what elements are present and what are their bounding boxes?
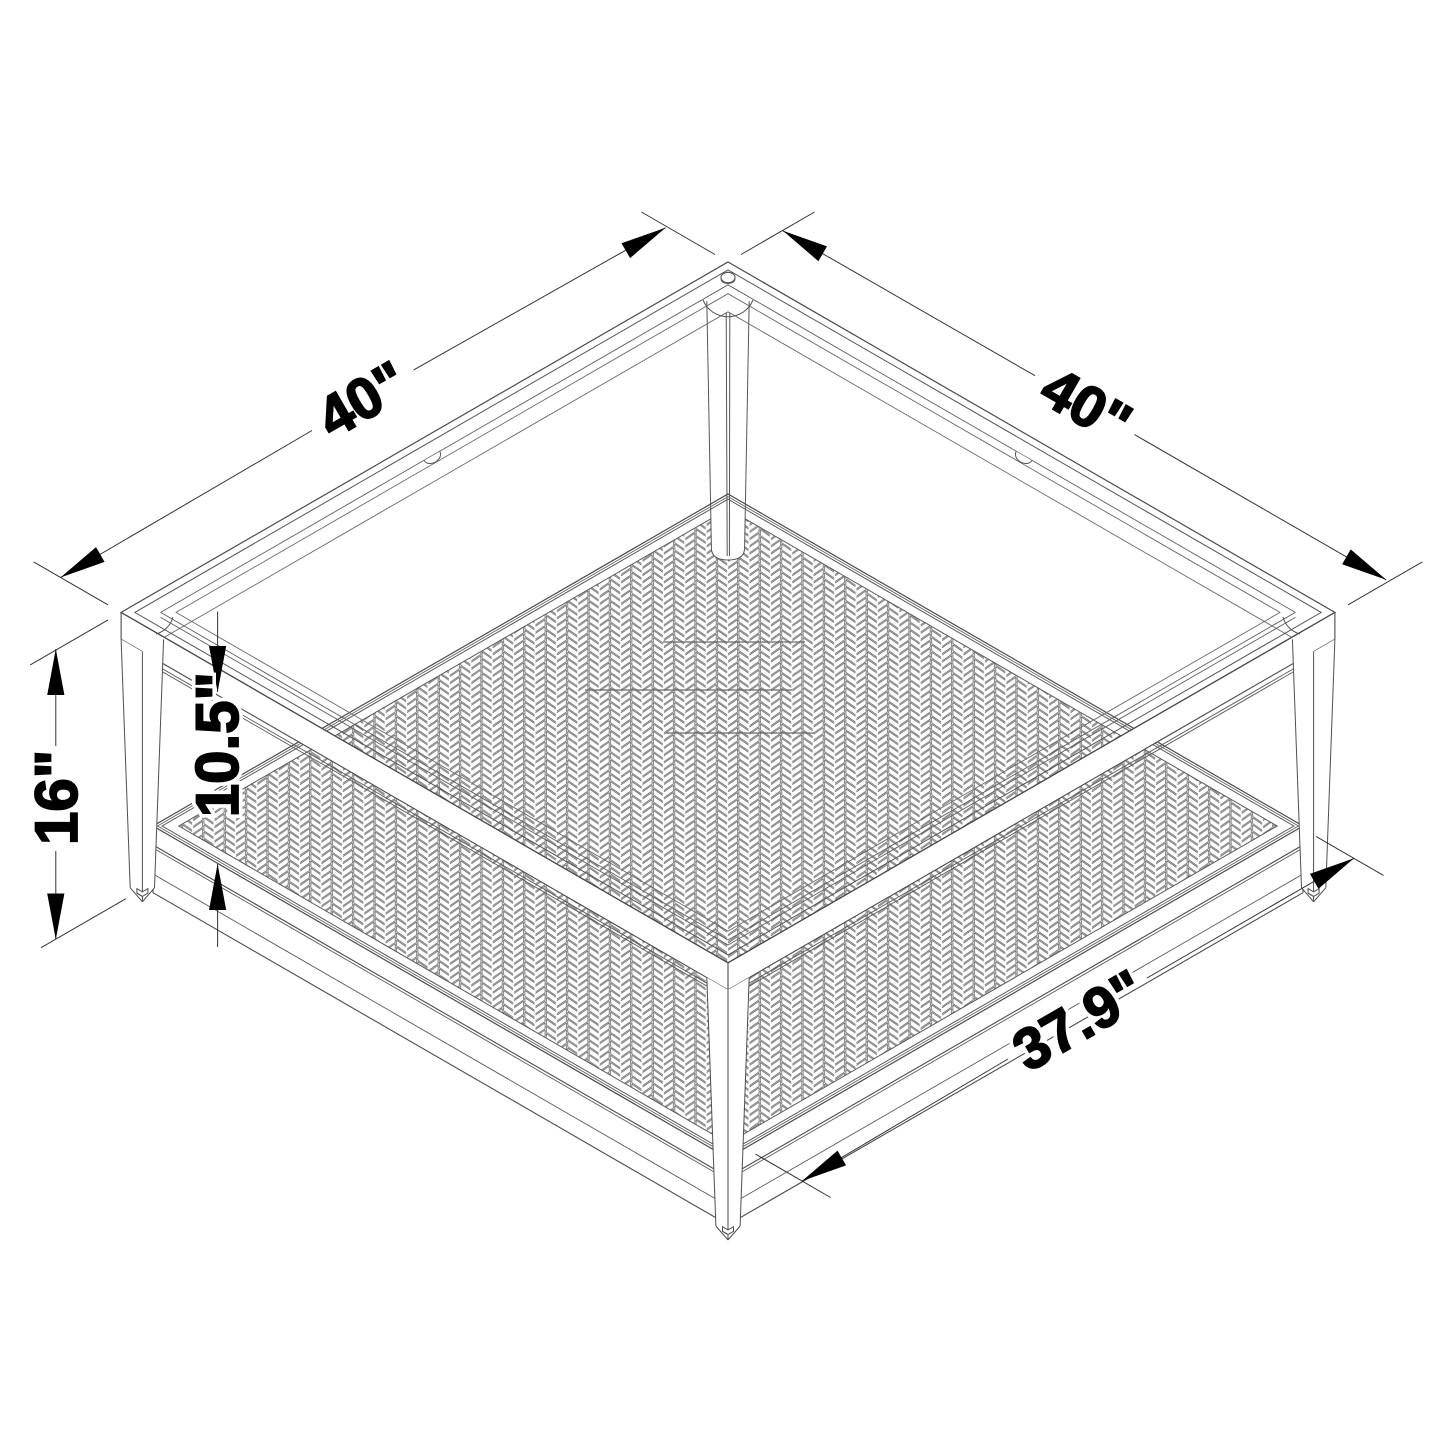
svg-text:10.5": 10.5" [184,672,251,817]
svg-text:16": 16" [23,750,90,845]
